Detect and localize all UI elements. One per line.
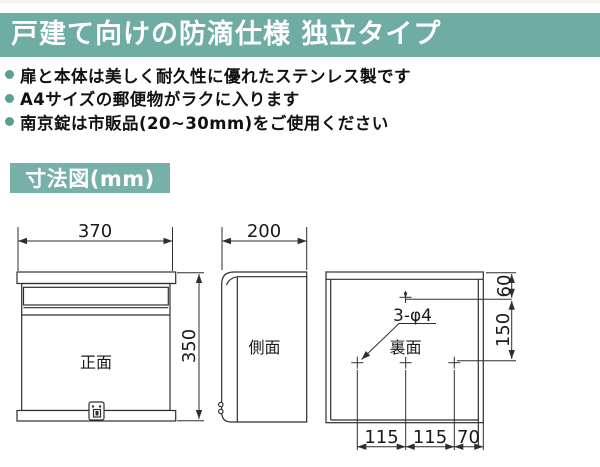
page-title: 戸建て向けの防滴仕様 独立タイプ bbox=[0, 13, 600, 57]
back-pitch-dim-1: 115 bbox=[364, 427, 398, 448]
side-view-label: 側面 bbox=[248, 338, 280, 357]
feature-text: 扉と本体は美しく耐久性に優れたステンレス製です bbox=[20, 63, 411, 87]
feature-item: A4サイズの郵便物がラクに入ります bbox=[4, 87, 596, 111]
front-lock-latch bbox=[89, 402, 104, 420]
front-width-dim: 370 bbox=[78, 221, 112, 242]
front-view: 370 正面 350 bbox=[17, 221, 204, 421]
feature-item: 南京錠は市販品(20~30mm)をご使用ください bbox=[4, 110, 596, 134]
front-height-dim: 350 bbox=[179, 329, 200, 363]
back-vertical-pitch-dim: 150 bbox=[493, 313, 514, 347]
side-depth-dim: 200 bbox=[247, 221, 281, 242]
side-view: 200 側面 bbox=[219, 221, 307, 422]
feature-list: 扉と本体は美しく耐久性に優れたステンレス製です A4サイズの郵便物がラクに入りま… bbox=[4, 63, 596, 134]
section-title-badge: 寸法図(mm) bbox=[10, 163, 170, 193]
feature-text: A4サイズの郵便物がラクに入ります bbox=[20, 86, 300, 110]
back-view: 60 150 3-φ4 裏面 115 115 70 bbox=[326, 272, 516, 450]
front-view-label: 正面 bbox=[80, 353, 112, 372]
dimension-diagram: 370 正面 350 200 bbox=[0, 200, 600, 467]
back-top-offset-dim: 60 bbox=[494, 275, 515, 298]
feature-text: 南京錠は市販品(20~30mm)をご使用ください bbox=[20, 110, 389, 134]
bullet-icon bbox=[5, 70, 14, 79]
back-bottom-holes bbox=[351, 357, 460, 369]
back-pitch-dim-3: 70 bbox=[457, 427, 480, 448]
bullet-icon bbox=[5, 94, 14, 103]
back-pitch-dim-2: 115 bbox=[413, 427, 447, 448]
feature-item: 扉と本体は美しく耐久性に優れたステンレス製です bbox=[4, 63, 596, 87]
side-lock-tab bbox=[219, 402, 223, 413]
product-info-image: { "header": { "title": "戸建て向けの防滴仕様 独立タイプ… bbox=[0, 0, 600, 467]
back-top-hole bbox=[400, 291, 412, 303]
back-view-label: 裏面 bbox=[389, 338, 421, 357]
bullet-icon bbox=[5, 117, 14, 126]
